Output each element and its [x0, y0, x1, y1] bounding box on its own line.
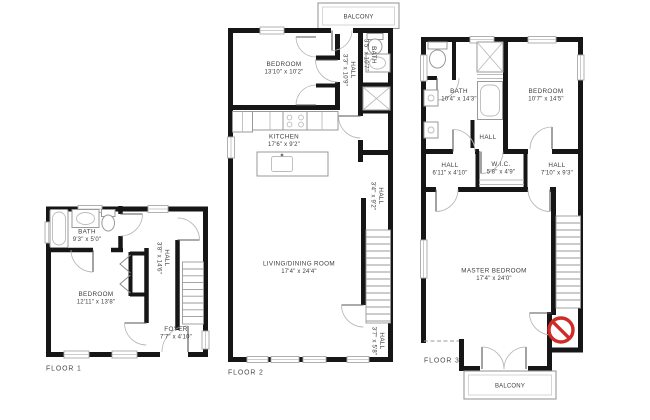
staircase [183, 262, 204, 324]
hall-right-label: HALL [548, 162, 565, 169]
hall-top-label: HALL [479, 134, 496, 141]
bedroom-door [125, 323, 147, 345]
bedroom-label: BEDROOM [267, 61, 302, 68]
vanity-sink [366, 54, 390, 72]
refrigerator [233, 112, 253, 133]
foyer-label: FOYER [164, 326, 188, 333]
toilet [428, 42, 447, 68]
floor-1-fixtures [50, 210, 204, 325]
bedroom-dims: 10'7" x 14'5" [528, 97, 564, 103]
window [112, 351, 137, 358]
floor-plan-canvas: BATH 9'3" x 5'0" BEDROOM 12'11" x 13'8" … [0, 0, 650, 420]
bath-door [71, 250, 93, 272]
hall-upper-label: HALL [349, 61, 356, 78]
balcony-label: BALCONY [495, 384, 525, 390]
bathtub [50, 210, 68, 248]
floor-1-plan: BATH 9'3" x 5'0" BEDROOM 12'11" x 13'8" … [45, 206, 209, 373]
hall-left-dims: 6'11" x 4'10" [432, 171, 467, 177]
floor-2-fixtures [233, 34, 391, 324]
master-bedroom-dims: 17'4" x 24'0" [476, 276, 512, 282]
bedroom-dims: 12'11" x 13'8" [77, 300, 116, 306]
hall-mid-label: HALL [377, 187, 384, 204]
vanity-sink [424, 122, 438, 138]
balcony-double-door [480, 347, 528, 372]
bath-label: BATH [78, 229, 96, 236]
bath-label: BATH [450, 88, 468, 95]
kitchen-island [257, 152, 328, 176]
floor-3-balcony: BALCONY [464, 371, 556, 399]
closet-door [339, 116, 361, 138]
hall-label: HALL [163, 249, 170, 266]
hall-lower-dims: 3'7" x 5'8" [371, 327, 377, 355]
window [228, 137, 235, 158]
bath-dims: 10'4" x 14'3" [441, 97, 477, 103]
bedroom-door [316, 60, 338, 82]
floor-2-plan: BALCONY [228, 3, 400, 377]
window [578, 55, 585, 80]
bedroom-door [530, 127, 552, 149]
hall-dims: 3'8" x 14'6" [156, 242, 162, 274]
window [528, 37, 556, 44]
staircase [556, 216, 581, 308]
floor-2-title: FLOOR 2 [228, 370, 264, 377]
bath-label: BATH [370, 46, 377, 64]
hall-right-dims: 7'10" x 9'3" [541, 171, 573, 177]
floor-3-title: FLOOR 3 [424, 358, 460, 365]
window [303, 357, 326, 363]
floor-1-title: FLOOR 1 [46, 366, 82, 373]
window [271, 357, 299, 363]
hall-mid-dims: 3'4" x 9'2" [370, 182, 376, 210]
wic-label: W.I.C. [491, 161, 510, 168]
bath-dims: 9'3" x 5'0" [73, 237, 101, 243]
balcony-label: BALCONY [343, 15, 373, 21]
wic-shelves [479, 180, 524, 185]
hall-lower-label: HALL [378, 332, 385, 349]
bedroom-label: BEDROOM [529, 88, 564, 95]
staircase [366, 230, 391, 323]
hall-door [342, 305, 364, 327]
hall-left-master-door [436, 190, 458, 212]
vanity-sink [424, 90, 438, 106]
bathtub [478, 82, 503, 120]
toilet [102, 210, 116, 232]
kitchen-dims: 17'6" x 9'2" [268, 142, 300, 148]
hall-left-label: HALL [441, 162, 458, 169]
vanity-sink [72, 210, 99, 228]
foyer-dims: 7'7" x 4'10" [160, 335, 192, 341]
window [202, 331, 209, 349]
window [347, 357, 369, 363]
no-entry-icon [549, 318, 573, 342]
shower [363, 87, 390, 110]
window [260, 27, 284, 34]
bath-hall-door [121, 214, 143, 236]
kitchen-label: KITCHEN [269, 134, 299, 141]
floor-plan-page: BATH 9'3" x 5'0" BEDROOM 12'11" x 13'8" … [0, 0, 650, 420]
master-bedroom-label: MASTER BEDROOM [461, 268, 526, 275]
wic-dims: 5'8" x 4'9" [487, 170, 515, 176]
floor-2-balcony: BALCONY [318, 3, 399, 29]
floor-3-plan: BALCONY BATH 10'4" x 14'3" BEDROOM 10'7"… [421, 37, 585, 400]
closet-door [296, 85, 316, 105]
hall-right-master-door [528, 190, 550, 212]
balcony-door [331, 27, 353, 51]
bedroom-label: BEDROOM [79, 291, 114, 298]
window [64, 351, 89, 358]
hall-upper-dims: 3'3" x 10'9" [342, 54, 348, 86]
bath-dims: 3'5" x 10'7" [363, 39, 369, 71]
stove [283, 112, 307, 131]
shower [477, 42, 503, 79]
living-dims: 17'4" x 24'4" [281, 269, 317, 275]
living-label: LIVING/DINING ROOM [263, 261, 335, 268]
window [421, 240, 428, 278]
closet-door [296, 37, 316, 57]
floor-3-doors [436, 78, 552, 372]
landing-door [178, 218, 200, 240]
window [421, 55, 428, 81]
bedroom-dims: 13'10" x 10'2" [264, 70, 303, 76]
window [247, 357, 268, 363]
window [148, 206, 168, 213]
